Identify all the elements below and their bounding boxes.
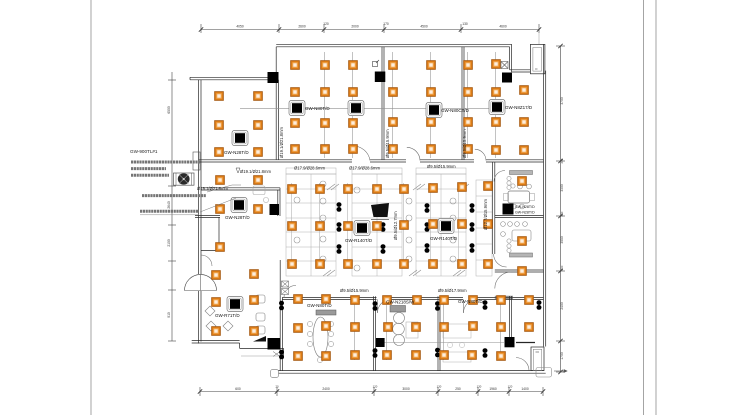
- svg-text:Ø19.1/Ø21.8mm: Ø19.1/Ø21.8mm: [279, 127, 284, 158]
- svg-text:GW-N28T/D: GW-N28T/D: [224, 150, 249, 155]
- svg-text:600: 600: [235, 387, 241, 391]
- svg-text:Ø17.9/Ø28.6mm: Ø17.9/Ø28.6mm: [294, 166, 325, 171]
- svg-text:2400: 2400: [560, 302, 564, 310]
- svg-text:GW-N80T/D: GW-N80T/D: [305, 106, 330, 111]
- svg-text:3700: 3700: [560, 97, 564, 105]
- svg-text:120: 120: [373, 385, 378, 389]
- svg-text:2640: 2640: [167, 201, 171, 209]
- svg-text:GW-900TL#1: GW-900TL#1: [130, 149, 158, 154]
- svg-text:910: 910: [167, 312, 171, 318]
- svg-text:6500: 6500: [167, 106, 171, 114]
- svg-text:GW-R71T/D: GW-R71T/D: [215, 313, 240, 318]
- svg-text:130: 130: [477, 385, 482, 389]
- svg-text:Ø9.5/Ø15.9mm: Ø9.5/Ø15.9mm: [340, 288, 369, 293]
- svg-text:GW-N218S/W: GW-N218S/W: [386, 300, 415, 305]
- svg-text:600: 600: [560, 158, 564, 163]
- svg-text:GW-N80T/D: GW-N80T/D: [307, 303, 332, 308]
- svg-text:4050: 4050: [236, 25, 244, 29]
- svg-text:130: 130: [437, 385, 442, 389]
- svg-text:4500: 4500: [420, 25, 428, 29]
- svg-text:4600: 4600: [499, 25, 507, 29]
- svg-text:Ø9.5/Ø17.9mm: Ø9.5/Ø17.9mm: [438, 288, 467, 293]
- svg-text:3000: 3000: [402, 387, 410, 391]
- svg-text:120: 120: [323, 22, 329, 26]
- svg-text:130: 130: [462, 22, 468, 26]
- svg-text:600: 600: [560, 211, 564, 216]
- svg-text:170: 170: [383, 22, 389, 26]
- svg-text:1700: 1700: [560, 352, 564, 360]
- svg-text:2100: 2100: [167, 239, 171, 247]
- svg-text:GW-N28T/D: GW-N28T/D: [515, 205, 535, 209]
- svg-text:1400: 1400: [521, 387, 529, 391]
- svg-text:GW-N80CT/D: GW-N80CT/D: [441, 108, 470, 113]
- svg-text:Ø9.5/Ø15.9mm: Ø9.5/Ø15.9mm: [427, 164, 456, 169]
- svg-text:120: 120: [508, 385, 513, 389]
- svg-text:20: 20: [275, 385, 279, 389]
- svg-text:600: 600: [560, 265, 564, 270]
- svg-text:2400: 2400: [322, 387, 330, 391]
- svg-text:2000: 2000: [351, 25, 359, 29]
- svg-text:2600: 2600: [298, 25, 306, 29]
- svg-text:GW-N8Z17/D: GW-N8Z17/D: [505, 105, 533, 110]
- svg-text:GW-N80T/D: GW-N80T/D: [458, 299, 483, 304]
- svg-text:Ø9.5/Ø15.9mm: Ø9.5/Ø15.9mm: [385, 129, 390, 158]
- svg-text:GW-R140T/D: GW-R140T/D: [345, 238, 373, 243]
- svg-text:Ø9.5/Ø15.9mm: Ø9.5/Ø15.9mm: [462, 129, 467, 158]
- svg-text:3050: 3050: [560, 236, 564, 244]
- svg-text:3300: 3300: [560, 184, 564, 192]
- svg-text:Ø19.1/Ø21.8mm: Ø19.1/Ø21.8mm: [240, 169, 271, 174]
- svg-text:GW-R140T/D: GW-R140T/D: [430, 236, 458, 241]
- svg-text:Ø12.7/Ø15.9mm: Ø12.7/Ø15.9mm: [483, 199, 488, 230]
- svg-text:250: 250: [455, 387, 461, 391]
- svg-text:Ø19.1/Ø21.8mm: Ø19.1/Ø21.8mm: [197, 186, 228, 191]
- svg-text:GW-N28T/D: GW-N28T/D: [225, 215, 250, 220]
- svg-text:1960: 1960: [489, 387, 497, 391]
- svg-text:GW-N28T/D: GW-N28T/D: [515, 211, 535, 215]
- svg-text:Ø17.9/Ø28.6mm: Ø17.9/Ø28.6mm: [349, 166, 380, 171]
- svg-text:Ø9.5/Ø12.7mm: Ø9.5/Ø12.7mm: [393, 211, 398, 240]
